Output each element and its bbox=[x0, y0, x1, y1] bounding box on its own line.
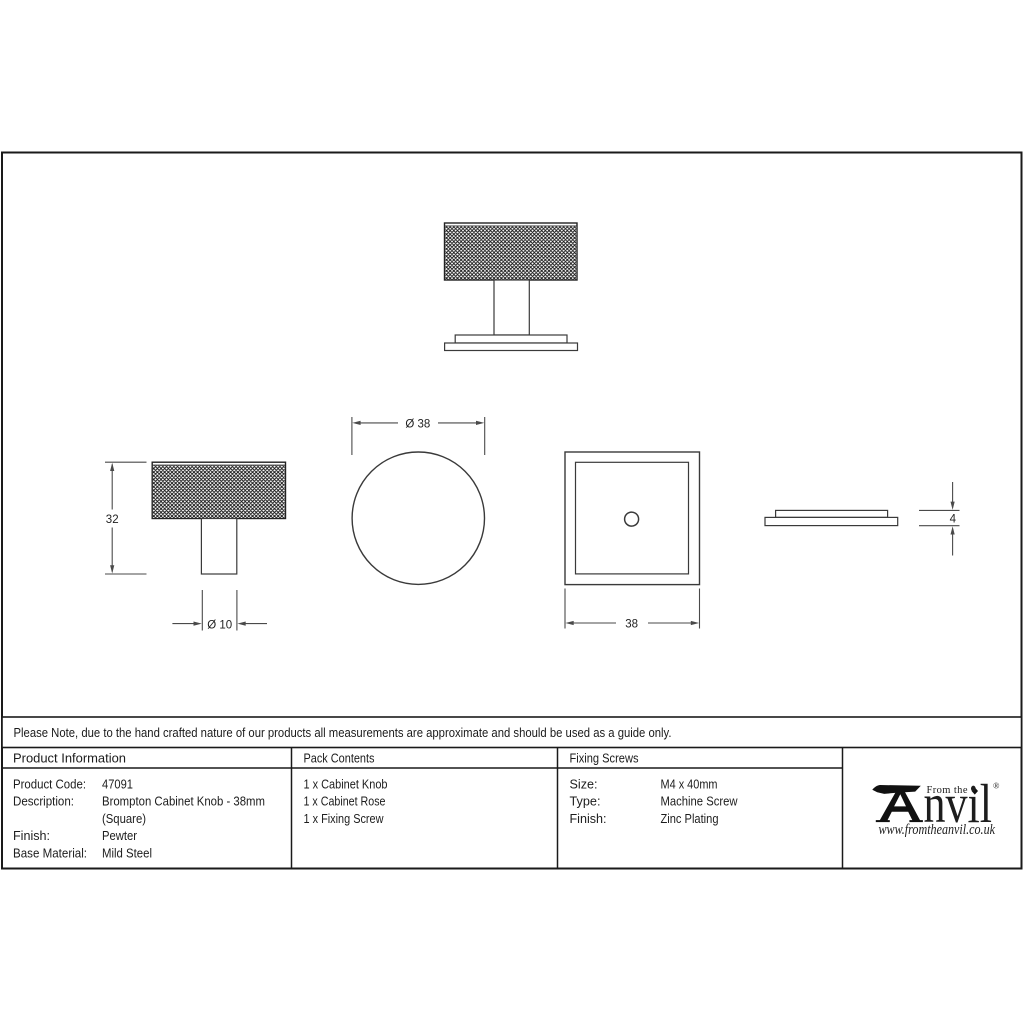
svg-text:Description:: Description: bbox=[13, 794, 74, 809]
svg-text:®: ® bbox=[993, 781, 1000, 791]
svg-text:1 x Cabinet Knob: 1 x Cabinet Knob bbox=[304, 777, 388, 792]
svg-text:Ø 10: Ø 10 bbox=[207, 619, 232, 631]
svg-text:Pack Contents: Pack Contents bbox=[304, 751, 375, 766]
svg-text:Type:: Type: bbox=[570, 794, 601, 809]
svg-text:38: 38 bbox=[625, 619, 638, 631]
svg-text:32: 32 bbox=[106, 514, 119, 526]
svg-text:Finish:: Finish: bbox=[570, 811, 607, 826]
svg-text:Please Note, due to the hand c: Please Note, due to the hand crafted nat… bbox=[14, 725, 672, 740]
svg-text:Ø 38: Ø 38 bbox=[405, 419, 430, 431]
svg-text:Fixing Screws: Fixing Screws bbox=[570, 751, 639, 766]
svg-text:www.fromtheanvil.co.uk: www.fromtheanvil.co.uk bbox=[879, 822, 996, 838]
svg-text:1 x Fixing Screw: 1 x Fixing Screw bbox=[304, 811, 385, 826]
svg-text:Zinc Plating: Zinc Plating bbox=[661, 811, 719, 826]
svg-text:47091: 47091 bbox=[102, 777, 133, 792]
svg-text:Base Material:: Base Material: bbox=[13, 845, 87, 860]
svg-text:Mild Steel: Mild Steel bbox=[102, 845, 152, 860]
svg-text:Product Information: Product Information bbox=[13, 751, 126, 766]
svg-text:Finish:: Finish: bbox=[13, 828, 50, 843]
svg-text:Brompton Cabinet Knob - 38mm: Brompton Cabinet Knob - 38mm bbox=[102, 794, 265, 809]
svg-text:4: 4 bbox=[950, 514, 957, 526]
svg-text:Product Code:: Product Code: bbox=[13, 777, 86, 792]
svg-text:Pewter: Pewter bbox=[102, 828, 138, 843]
svg-text:1 x Cabinet Rose: 1 x Cabinet Rose bbox=[304, 794, 386, 809]
svg-text:(Square): (Square) bbox=[102, 811, 146, 826]
svg-text:Machine Screw: Machine Screw bbox=[661, 794, 739, 809]
svg-text:M4 x 40mm: M4 x 40mm bbox=[661, 777, 718, 792]
svg-text:Size:: Size: bbox=[570, 777, 598, 792]
